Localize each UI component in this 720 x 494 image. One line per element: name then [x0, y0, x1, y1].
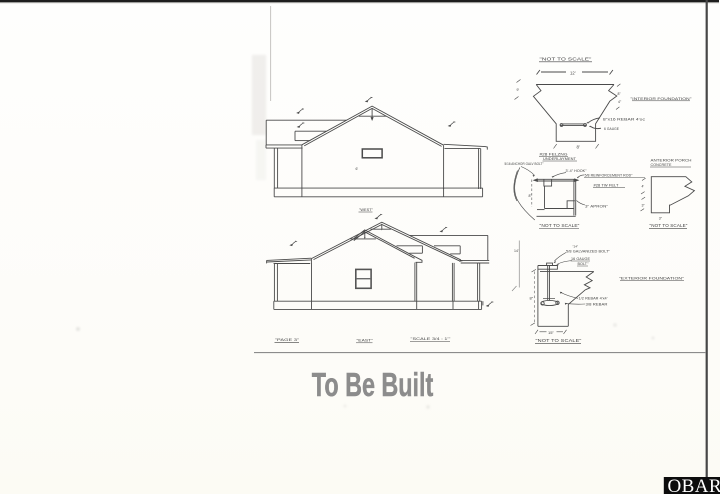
svg-text:"WEST": "WEST" [359, 208, 374, 212]
svg-text:"PAGE 3": "PAGE 3" [275, 338, 300, 342]
svg-text:6': 6' [356, 167, 359, 171]
svg-text:6 GAUGE: 6 GAUGE [604, 127, 620, 131]
svg-text:ANTERIOR PORCH: ANTERIOR PORCH [651, 159, 693, 163]
svg-text:"NOT TO SCALE": "NOT TO SCALE" [536, 338, 583, 343]
svg-text:12': 12' [570, 71, 576, 76]
svg-text:4': 4' [642, 185, 645, 189]
svg-text:OBAR: OBAR [668, 476, 720, 494]
svg-text:#28 FELZNG: #28 FELZNG [540, 152, 568, 156]
svg-text:3/8 REBAR: 3/8 REBAR [586, 303, 608, 307]
svg-text:BOLT": BOLT" [578, 262, 590, 266]
svg-text:CONCRETE: CONCRETE [651, 163, 673, 167]
svg-text:"INTERIOR FOUNDATION": "INTERIOR FOUNDATION" [631, 96, 693, 101]
svg-text:5/8 REINFORCEMENT ROD": 5/8 REINFORCEMENT ROD" [585, 173, 634, 177]
svg-text:5/8 GALVANIZED BOLT": 5/8 GALVANIZED BOLT" [566, 249, 611, 253]
svg-text:8": 8" [530, 296, 534, 301]
svg-text:"24": "24" [573, 244, 579, 248]
svg-text:3" APRON": 3" APRON" [585, 204, 609, 208]
svg-text:#28 TW FELT: #28 TW FELT [594, 184, 620, 188]
svg-text:To Be Built: To Be Built [312, 367, 434, 404]
svg-text:"NOT TO SCALE": "NOT TO SCALE" [540, 57, 593, 62]
svg-text:14': 14' [514, 249, 519, 253]
svg-text:15": 15" [548, 330, 555, 335]
svg-text:8': 8' [577, 145, 580, 150]
svg-text:9': 9' [517, 88, 520, 92]
svg-text:"EXTERIOR FOUNDATION": "EXTERIOR FOUNDATION" [619, 275, 685, 280]
svg-text:"EAST": "EAST" [357, 339, 374, 343]
svg-text:1/2 REBAR 4'x4': 1/2 REBAR 4'x4' [579, 296, 608, 300]
svg-text:16 GAUGE: 16 GAUGE [571, 257, 591, 261]
svg-text:5/16 ANCHOR GALV BOLT": 5/16 ANCHOR GALV BOLT" [505, 162, 545, 166]
svg-text:"SCALE 3/4 : 1'": "SCALE 3/4 : 1'" [411, 337, 452, 341]
svg-text:UNDERLAYMENT: UNDERLAYMENT [543, 157, 577, 161]
svg-text:"NOT TO SCALE": "NOT TO SCALE" [650, 223, 688, 228]
svg-text:8"x16 REBAR 4'oc: 8"x16 REBAR 4'oc [603, 118, 645, 122]
svg-text:"NOT TO SCALE": "NOT TO SCALE" [540, 223, 580, 228]
